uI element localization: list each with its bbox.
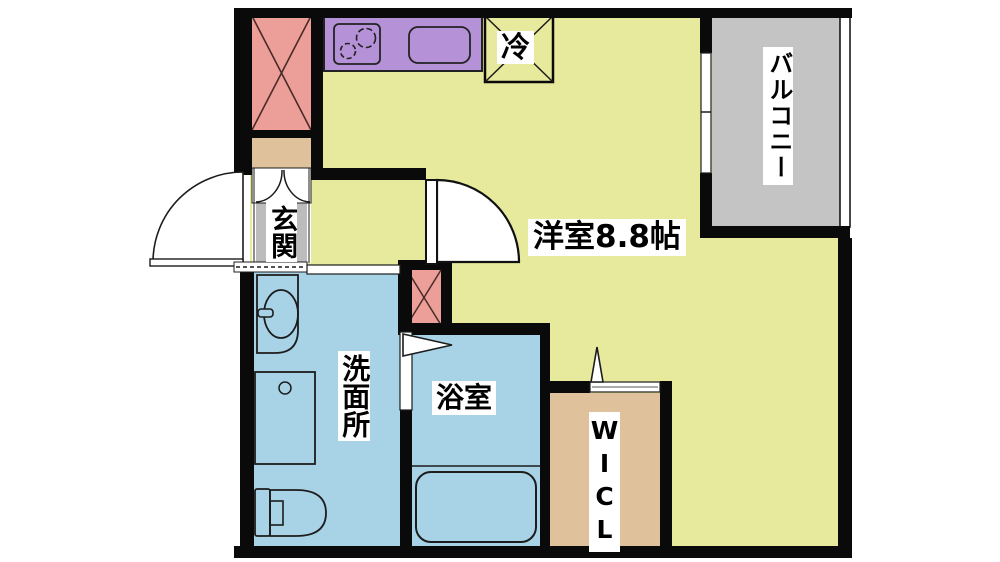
wall-entrance-right	[311, 16, 323, 180]
refrigerator-label: 冷	[497, 31, 534, 64]
wall-hall-top	[311, 168, 426, 180]
main-room-label: 洋室8.8帖	[528, 219, 686, 256]
wall-closet-right	[660, 381, 672, 548]
wall-bathroom-top	[398, 323, 550, 335]
bathroom-floor	[412, 335, 540, 546]
bathroom-label: 浴室	[432, 381, 496, 415]
entrance-label: 玄関	[266, 202, 297, 262]
shoe-cabinet	[252, 138, 311, 168]
front-door-leaf	[150, 259, 243, 266]
vanity-faucet	[258, 309, 273, 317]
front-door-swing-arc	[153, 172, 243, 262]
wall-left-upper	[234, 8, 252, 175]
wall-top	[234, 8, 852, 18]
main-room-door-leaf	[426, 180, 437, 264]
walk-in-closet-label: WICL	[589, 412, 620, 552]
balcony-railing	[840, 15, 850, 227]
wall-bathroom-right	[540, 335, 550, 548]
floor-plan: 洋室8.8帖 バルコニー 玄関 洗面所 浴室 WICL 冷	[0, 0, 1000, 562]
washroom-label: 洗面所	[338, 351, 370, 441]
floor-plan-drawing	[0, 0, 1000, 562]
wall	[252, 130, 311, 138]
wall-left-lower	[240, 262, 254, 558]
washroom-floor	[252, 272, 400, 546]
balcony-window	[701, 53, 711, 173]
wall-right-lower	[838, 238, 852, 546]
balcony-label: バルコニー	[763, 47, 793, 185]
washroom-sliding-door	[307, 265, 400, 274]
wall-balcony-left-upper	[700, 16, 712, 53]
wall-balcony-bottom	[700, 226, 850, 238]
wall-closet-top	[540, 381, 590, 393]
